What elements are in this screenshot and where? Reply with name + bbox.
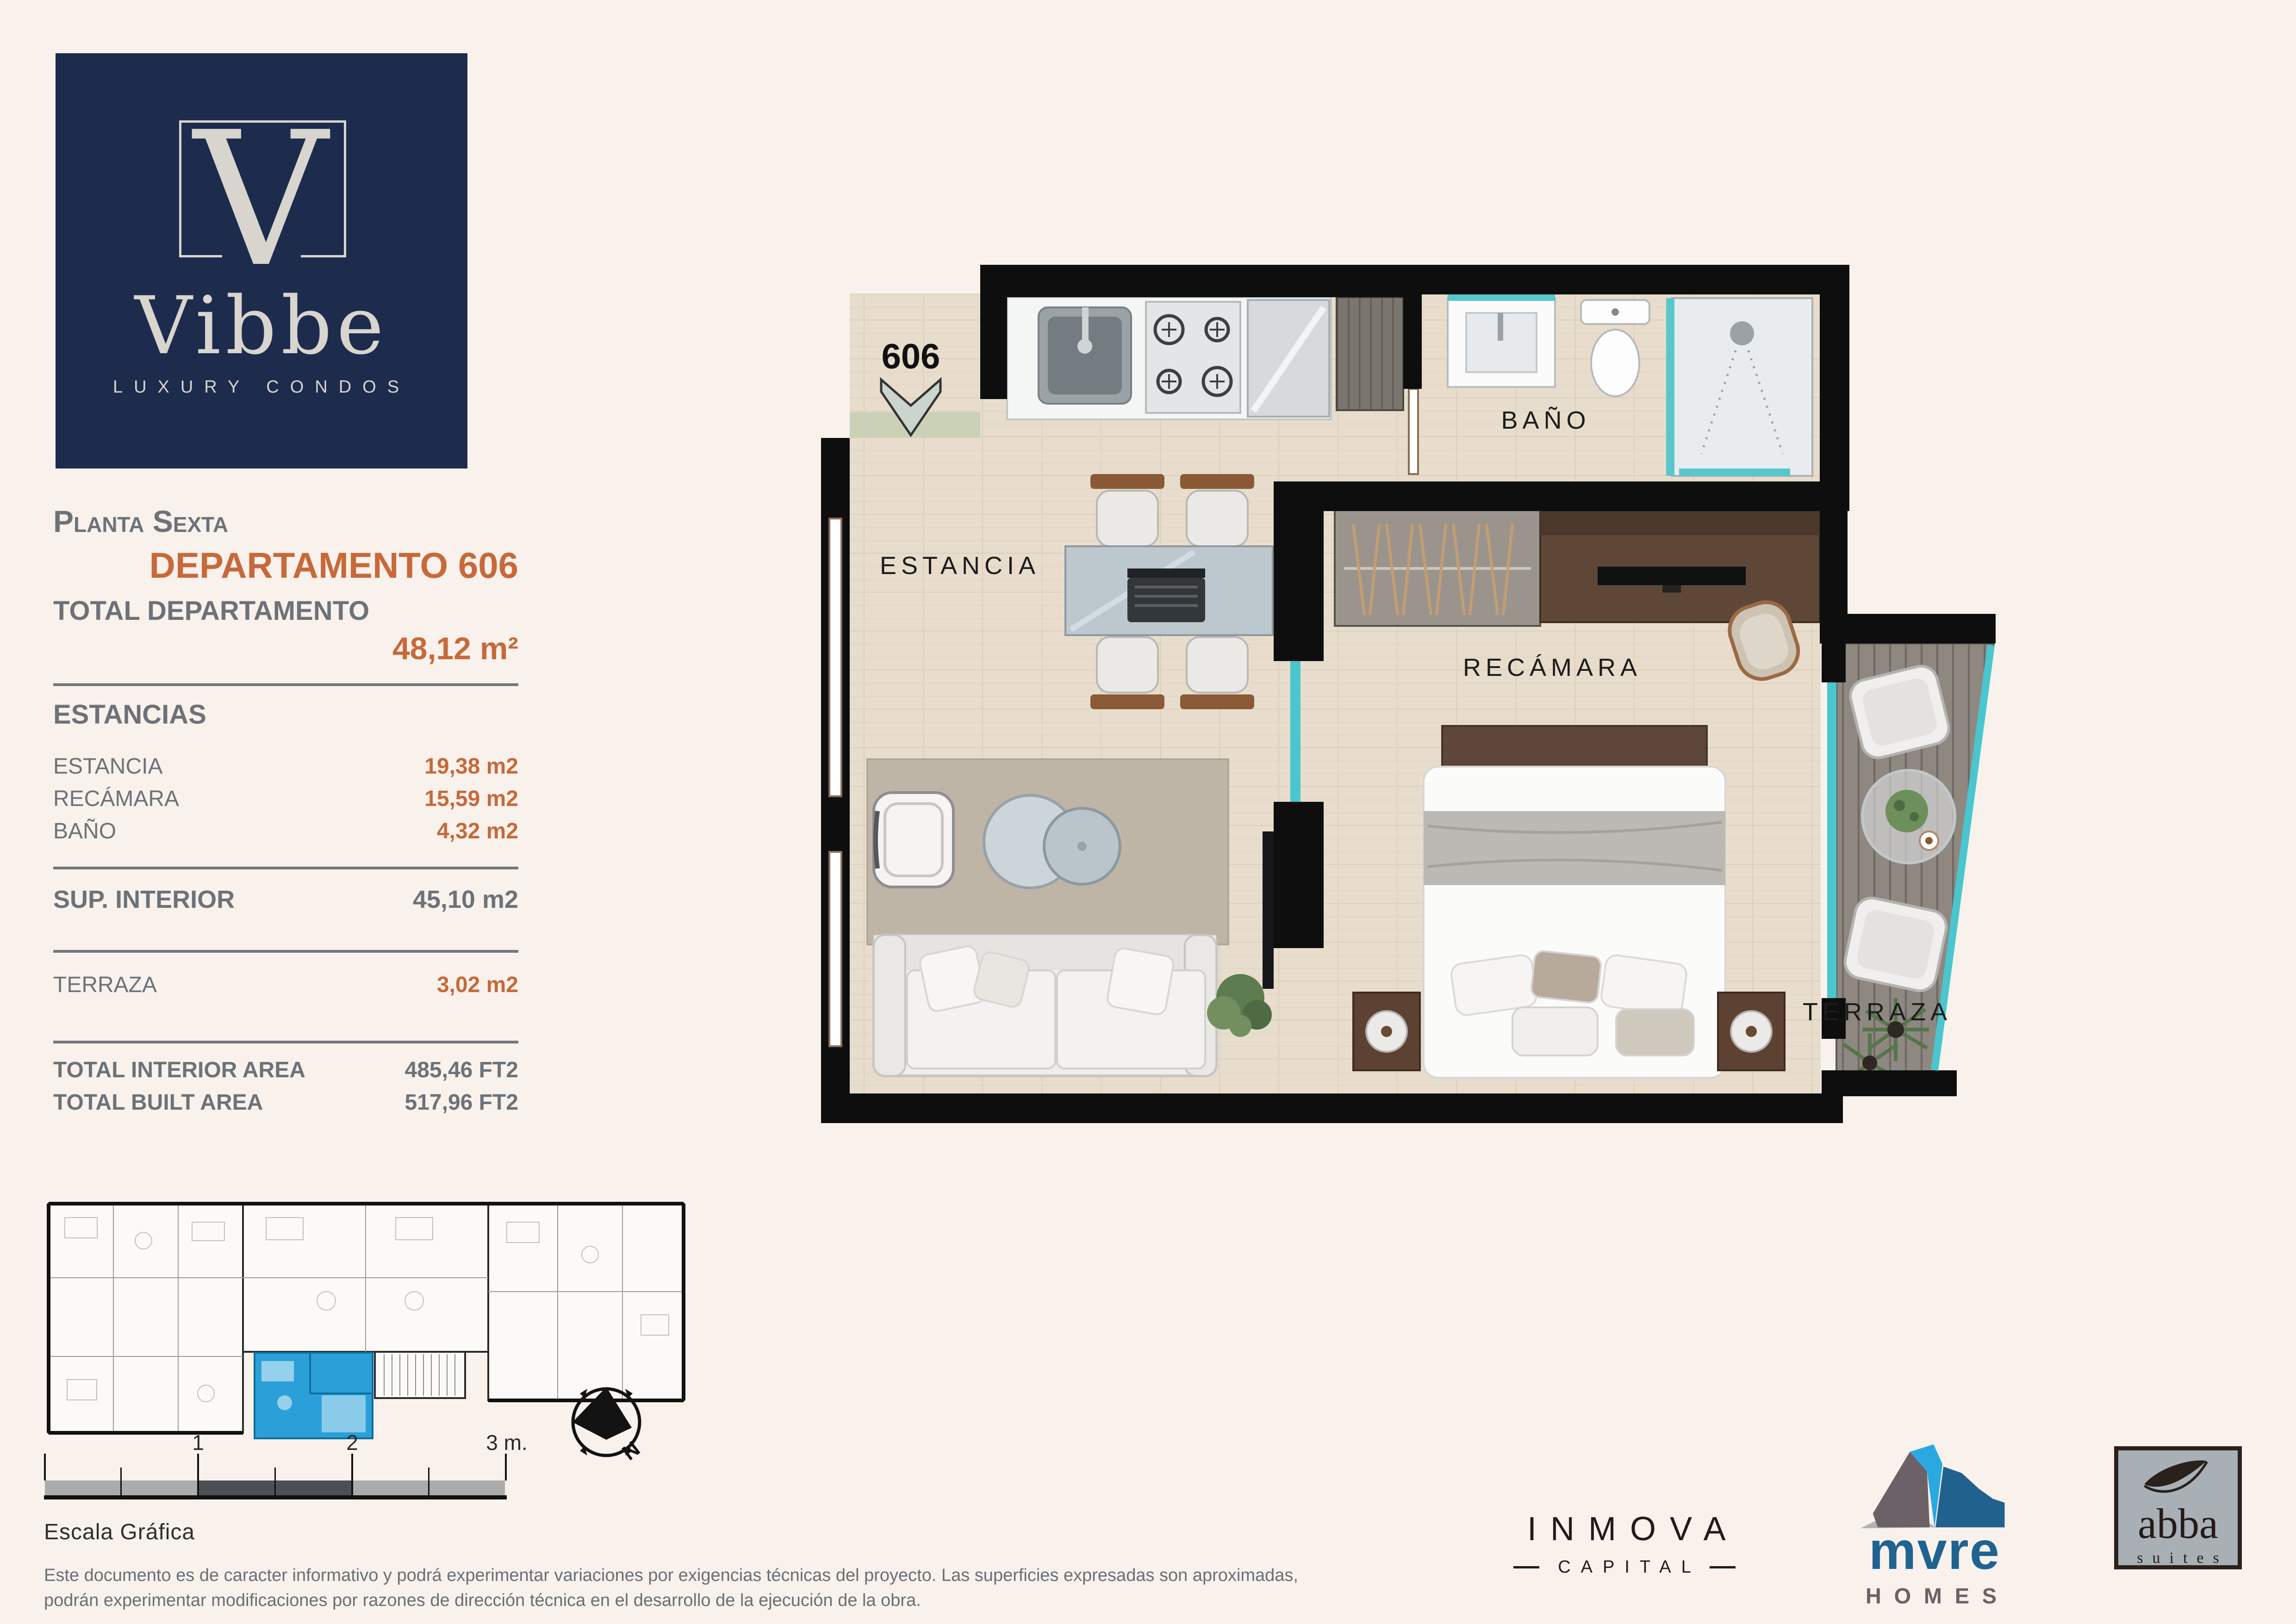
mure-subtitle: HOMES [1866,1584,2009,1608]
terrace-glass-door [1827,682,1836,998]
bathroom-vanity [1448,293,1555,387]
divider [53,683,518,686]
shower-icon [1666,298,1812,476]
floor-plan-drawing: 606 ESTANCIA BAÑO RECÁMARA TERRAZA [805,204,2083,1157]
logo-rule-right [1710,1566,1736,1568]
scale-tick-1: 1 [192,1431,204,1455]
abba-subtitle: suites [2118,1549,2238,1567]
room-row-recamara: RECÁMARA 15,59 m2 [53,786,518,812]
refrigerator-icon [1248,300,1329,417]
inmova-subtitle: CAPITAL [1548,1557,1701,1577]
mure-name: mvre [1869,1521,2000,1580]
scale-bar: 1 2 3 m. [44,1431,544,1505]
room-row-bano: BAÑO 4,32 m2 [53,818,518,844]
window [829,518,841,796]
logo-monogram: V [180,108,342,293]
bedroom-closet [1335,509,1540,626]
highlighted-unit-606 [255,1353,373,1438]
mure-mountain-icon [1860,1444,2004,1528]
total-built-value: 517,96 FT2 [405,1090,518,1115]
armchair-icon [874,793,953,887]
window [829,852,841,1046]
divider [53,867,518,869]
laptop-icon [1127,578,1205,622]
terrace-table [1862,770,1955,863]
tv-icon [1263,831,1274,989]
room-value: 4,32 m2 [437,818,518,844]
compass-rose: N [562,1380,650,1472]
sofa-icon [874,935,1216,1076]
floor-plan: 606 ESTANCIA BAÑO RECÁMARA TERRAZA [805,204,2083,1157]
bano-label: BAÑO [1501,406,1590,434]
unit-title: DEPARTAMENTO 606 [53,544,518,587]
terraza-label: TERRAZA [1803,998,1952,1026]
disclaimer-line-2: podrán experimentar modificaciones por r… [44,1591,921,1611]
terrace-chair [1842,895,1949,994]
room-value: 15,59 m2 [424,786,518,812]
interior-area-label: SUP. INTERIOR [53,885,235,914]
room-row-estancia: ESTANCIA 19,38 m2 [53,754,518,779]
interior-area-value: 45,10 m2 [413,885,518,914]
total-departamento-label: TOTAL DEPARTAMENTO [53,595,369,626]
brand-name: Vibbe [56,279,467,372]
total-built-row: TOTAL BUILT AREA 517,96 FT2 [53,1090,518,1115]
bathroom-door [1409,389,1418,474]
total-interior-row: TOTAL INTERIOR AREA 485,46 FT2 [53,1057,518,1083]
compass-north-label: N [617,1437,644,1465]
room-label: ESTANCIA [53,754,162,779]
divider [53,950,518,953]
terrace-row: TERRAZA 3,02 m2 [53,972,518,998]
inmova-name: INMOVA [1513,1510,1736,1548]
disclaimer-line-1: Este documento es de caracter informativ… [44,1566,1298,1586]
room-value: 19,38 m2 [424,754,518,779]
kitchen-counter [1007,297,1331,419]
brand-logo-block: V Vibbe LUXURY CONDOS [56,53,467,468]
floor-title: Planta Sexta [53,504,228,539]
total-departamento-value: 48,12 m² [53,631,518,667]
total-built-label: TOTAL BUILT AREA [53,1090,263,1115]
hall-closet [1337,297,1403,410]
terrace-value: 3,02 m2 [437,972,518,998]
stove-icon [1146,302,1240,413]
terrace-label: TERRAZA [53,972,157,998]
abba-suites-logo: abba suites [2114,1446,2242,1569]
total-interior-label: TOTAL INTERIOR AREA [53,1057,305,1083]
scale-tick-2: 2 [346,1431,358,1455]
unit-number-label: 606 [882,337,940,376]
brand-tagline: LUXURY CONDOS [56,377,467,397]
inmova-capital-logo: INMOVA CAPITAL [1513,1510,1736,1577]
estancia-label: ESTANCIA [880,552,1040,580]
logo-rule-left [1513,1566,1539,1568]
nightstand [1718,993,1785,1070]
room-label: BAÑO [53,818,116,844]
scale-tick-3: 3 m. [486,1431,527,1455]
glass-door [1290,661,1300,802]
bed-icon [1424,726,1725,1078]
total-interior-value: 485,46 FT2 [405,1057,518,1083]
sections-header: ESTANCIAS [53,699,206,730]
room-label: RECÁMARA [53,786,179,812]
interior-area-row: SUP. INTERIOR 45,10 m2 [53,885,518,914]
scale-bar-label: Escala Gráfica [44,1519,195,1545]
nightstand [1353,993,1420,1070]
tv-icon [1598,567,1746,585]
abba-leaf-icon [2136,1457,2221,1501]
mure-homes-logo: mvre HOMES [1860,1444,2009,1611]
abba-name: abba [2118,1502,2238,1545]
recamara-label: RECÁMARA [1463,654,1642,681]
divider [53,1041,518,1043]
